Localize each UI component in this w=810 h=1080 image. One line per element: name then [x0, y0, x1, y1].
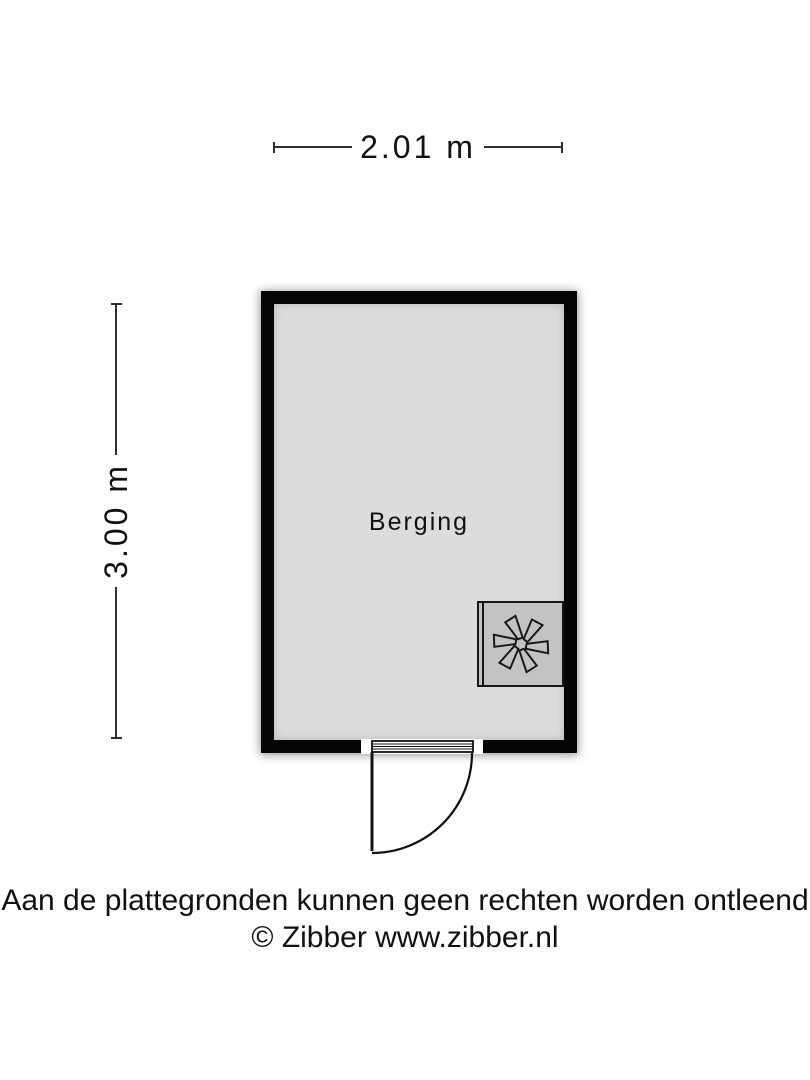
dimension-tick — [111, 737, 122, 739]
dimension-line — [484, 146, 561, 148]
fan-icon — [490, 613, 552, 675]
copyright-text: © Zibber www.zibber.nl — [0, 919, 810, 956]
ventilation-unit — [477, 601, 564, 687]
dimension-line — [275, 146, 352, 148]
dimension-tick — [561, 142, 563, 153]
dimension-height-label: 3.00 m — [100, 463, 132, 579]
dimension-line — [115, 587, 117, 737]
dimension-width: 2.01 m — [273, 129, 563, 165]
door-swing-arc — [372, 753, 472, 853]
floorplan-canvas: 2.01 m 3.00 m Berging — [0, 0, 810, 1080]
dimension-width-label: 2.01 m — [360, 131, 476, 163]
dimension-height: 3.00 m — [98, 303, 134, 739]
room-label: Berging — [369, 510, 469, 535]
door-swing — [360, 750, 490, 860]
footer: Aan de plattegronden kunnen geen rechten… — [0, 882, 810, 956]
room-berging: Berging — [261, 291, 577, 753]
dimension-line — [115, 305, 117, 455]
disclaimer-text: Aan de plattegronden kunnen geen rechten… — [0, 882, 810, 919]
